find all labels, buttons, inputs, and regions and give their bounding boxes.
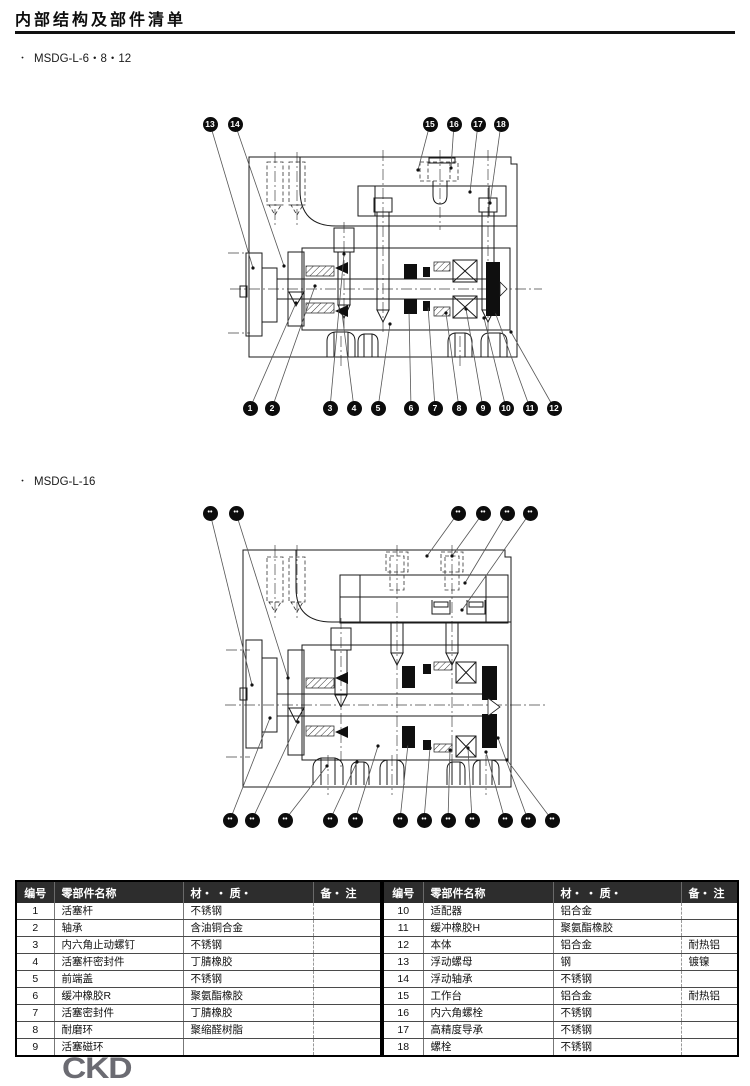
callout-diagram2-16: •• [498,813,513,828]
part-material: 不锈钢 [183,903,313,920]
column-header: 材・ ・ 质・ [183,881,313,903]
callout-diagram1-18: 12 [547,401,562,416]
callout-diagram2-14: •• [441,813,456,828]
parts-table-right: 编号零部件名称材・ ・ 质・备・ 注10适配器铝合金11缓冲橡胶H聚氨酯橡胶12… [382,880,739,1057]
callout-diagram1-1: 13 [203,117,218,132]
callout-diagram2-1: •• [203,506,218,521]
column-header: 备・ 注 [681,881,738,903]
part-material: 不锈钢 [183,971,313,988]
part-material: 聚缩醛树脂 [183,1022,313,1039]
part-material: 丁腈橡胶 [183,1005,313,1022]
part-no: 15 [383,988,423,1005]
part-no: 8 [16,1022,54,1039]
callout-diagram1-7: 1 [243,401,258,416]
callout-diagram2-4: •• [476,506,491,521]
table-row: 13浮动螺母钢镀镍 [383,954,738,971]
part-note [681,1022,738,1039]
part-name: 活塞杆 [54,903,183,920]
part-note: 镀镍 [681,954,738,971]
part-material: 聚氨酯橡胶 [183,988,313,1005]
part-note [313,920,381,937]
part-note [313,1022,381,1039]
callout-diagram1-16: 10 [499,401,514,416]
part-name: 浮动螺母 [423,954,553,971]
callout-diagram2-10: •• [323,813,338,828]
part-name: 适配器 [423,903,553,920]
part-material: 铝合金 [553,988,681,1005]
part-name: 内六角止动螺钉 [54,937,183,954]
part-name: 耐磨环 [54,1022,183,1039]
table-row: 4活塞杆密封件丁腈橡胶 [16,954,381,971]
callout-diagram2-17: •• [521,813,536,828]
part-note [681,903,738,920]
part-name: 活塞密封件 [54,1005,183,1022]
column-header: 零部件名称 [54,881,183,903]
part-note [681,1005,738,1022]
callout-diagram2-12: •• [393,813,408,828]
table-row: 8耐磨环聚缩醛树脂 [16,1022,381,1039]
callout-diagram2-9: •• [278,813,293,828]
callout-diagram1-2: 14 [228,117,243,132]
part-note [313,988,381,1005]
part-no: 10 [383,903,423,920]
table-row: 12本体铝合金耐热铝 [383,937,738,954]
table-row: 10适配器铝合金 [383,903,738,920]
part-no: 13 [383,954,423,971]
ckd-logo: CKD [62,1052,131,1086]
part-material: 不锈钢 [553,1005,681,1022]
callout-diagram2-13: •• [417,813,432,828]
drawing-msdg-l-16 [225,545,545,795]
part-name: 高精度导承 [423,1022,553,1039]
column-header: 编号 [383,881,423,903]
table-row: 17高精度导承不锈钢 [383,1022,738,1039]
table-row: 6缓冲橡胶R聚氨酯橡胶 [16,988,381,1005]
table-row: 11缓冲橡胶H聚氨酯橡胶 [383,920,738,937]
table-row: 5前端盖不锈钢 [16,971,381,988]
table-row: 2轴承含油铜合金 [16,920,381,937]
column-header: 编号 [16,881,54,903]
parts-list: 编号零部件名称材・ ・ 质・备・ 注1活塞杆不锈钢2轴承含油铜合金3内六角止动螺… [15,880,739,1057]
part-no: 4 [16,954,54,971]
part-material: 丁腈橡胶 [183,954,313,971]
catalog-page: 内部结构及部件清单 ・MSDG-L-6・8・12 ・MSDG-L-16 [0,0,750,1083]
callout-diagram1-11: 5 [371,401,386,416]
part-note [681,920,738,937]
part-material: 铝合金 [553,903,681,920]
part-name: 前端盖 [54,971,183,988]
parts-table-left: 编号零部件名称材・ ・ 质・备・ 注1活塞杆不锈钢2轴承含油铜合金3内六角止动螺… [15,880,382,1057]
part-name: 工作台 [423,988,553,1005]
callout-diagram1-9: 3 [323,401,338,416]
part-no: 2 [16,920,54,937]
part-no: 7 [16,1005,54,1022]
part-note: 耐热铝 [681,937,738,954]
part-name: 活塞杆密封件 [54,954,183,971]
callout-diagram1-3: 15 [423,117,438,132]
callout-diagram2-7: •• [223,813,238,828]
part-note [313,971,381,988]
part-material: 铝合金 [553,937,681,954]
callout-diagram1-8: 2 [265,401,280,416]
part-material: 钢 [553,954,681,971]
callout-diagram2-5: •• [500,506,515,521]
part-name: 缓冲橡胶H [423,920,553,937]
part-note [681,1039,738,1057]
callout-diagram1-10: 4 [347,401,362,416]
table-row: 18螺栓不锈钢 [383,1039,738,1057]
callout-diagram1-15: 9 [476,401,491,416]
callout-diagram1-13: 7 [428,401,443,416]
callout-diagram2-6: •• [523,506,538,521]
part-name: 内六角螺栓 [423,1005,553,1022]
part-no: 11 [383,920,423,937]
part-material: 含油铜合金 [183,920,313,937]
callout-diagram1-14: 8 [452,401,467,416]
table-row: 3内六角止动螺钉不锈钢 [16,937,381,954]
part-name: 浮动轴承 [423,971,553,988]
part-material [183,1039,313,1057]
table-row: 16内六角螺栓不锈钢 [383,1005,738,1022]
callout-diagram2-11: •• [348,813,363,828]
part-material: 聚氨酯橡胶 [553,920,681,937]
callout-diagram1-6: 18 [494,117,509,132]
callout-diagram2-18: •• [545,813,560,828]
callout-diagram1-5: 17 [471,117,486,132]
table-row: 7活塞密封件丁腈橡胶 [16,1005,381,1022]
column-header: 材・ ・ 质・ [553,881,681,903]
part-no: 3 [16,937,54,954]
part-name: 本体 [423,937,553,954]
part-no: 17 [383,1022,423,1039]
column-header: 备・ 注 [313,881,381,903]
callout-diagram2-3: •• [451,506,466,521]
callout-diagram2-8: •• [245,813,260,828]
callout-diagram2-2: •• [229,506,244,521]
callout-diagram1-17: 11 [523,401,538,416]
part-material: 不锈钢 [553,1039,681,1057]
part-note: 耐热铝 [681,988,738,1005]
callout-diagram2-15: •• [465,813,480,828]
part-name: 螺栓 [423,1039,553,1057]
part-note [313,937,381,954]
part-no: 1 [16,903,54,920]
part-note [313,1005,381,1022]
part-material: 不锈钢 [553,971,681,988]
part-material: 不锈钢 [183,937,313,954]
part-no: 6 [16,988,54,1005]
table-row: 1活塞杆不锈钢 [16,903,381,920]
part-note [681,971,738,988]
part-no: 18 [383,1039,423,1057]
part-name: 轴承 [54,920,183,937]
part-no: 16 [383,1005,423,1022]
part-material: 不锈钢 [553,1022,681,1039]
part-name: 缓冲橡胶R [54,988,183,1005]
column-header: 零部件名称 [423,881,553,903]
part-note [313,954,381,971]
drawing-msdg-l-6-8-12 [228,150,542,368]
part-no: 5 [16,971,54,988]
callout-diagram1-12: 6 [404,401,419,416]
table-row: 15工作台铝合金耐热铝 [383,988,738,1005]
part-no: 14 [383,971,423,988]
callout-diagram1-4: 16 [447,117,462,132]
table-row: 14浮动轴承不锈钢 [383,971,738,988]
part-no: 9 [16,1039,54,1057]
part-note [313,903,381,920]
part-note [313,1039,381,1057]
part-no: 12 [383,937,423,954]
